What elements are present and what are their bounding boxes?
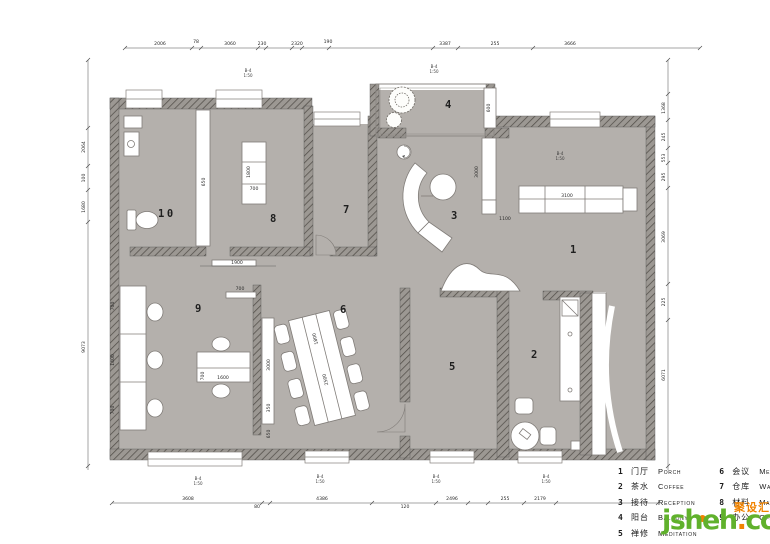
legend-column-left: 1 门厅 Porch 2 茶水 Coffee 3 接待 Reception 4 … bbox=[618, 466, 697, 543]
window bbox=[216, 90, 262, 108]
dim-label: 78 bbox=[193, 39, 199, 45]
dim-label: 1680 bbox=[81, 201, 87, 213]
dim-label: 230 bbox=[258, 41, 267, 47]
dim-label: 650 bbox=[201, 178, 207, 187]
dim-label: 2064 bbox=[81, 141, 87, 153]
legend-item: 2 茶水 Coffee bbox=[618, 481, 697, 496]
dim-label: 1368 bbox=[661, 102, 667, 114]
room-label-3: 3 bbox=[451, 210, 460, 222]
spiral-icon bbox=[397, 145, 411, 159]
window bbox=[314, 112, 360, 126]
detail-marker: B-41:50 bbox=[316, 474, 325, 484]
dim-label: 190 bbox=[324, 39, 333, 45]
window bbox=[550, 112, 600, 127]
svg-text:1:50: 1:50 bbox=[556, 156, 565, 161]
legend-item: 7 仓库 Warehouse bbox=[719, 481, 770, 496]
toilet bbox=[127, 210, 158, 230]
detail-marker: B-41:50 bbox=[194, 476, 203, 486]
svg-text:1:50: 1:50 bbox=[432, 479, 441, 484]
room-label-4: 4 bbox=[445, 99, 454, 111]
dim-label: 225 bbox=[661, 298, 667, 307]
dim-label: 3000 bbox=[266, 359, 272, 371]
svg-text:1:50: 1:50 bbox=[316, 479, 325, 484]
dim-label: 255 bbox=[501, 496, 510, 502]
dim-label: 2006 bbox=[154, 41, 166, 47]
dim-label: 1100 bbox=[499, 216, 511, 222]
room-label-10: 10 bbox=[158, 208, 176, 220]
plant-icon bbox=[387, 113, 402, 128]
dim-label: 255 bbox=[491, 41, 500, 47]
legend-item: 6 会议 Meeting bbox=[719, 466, 770, 481]
dim-label: 2179 bbox=[534, 496, 546, 502]
room-label-2: 2 bbox=[531, 349, 540, 361]
svg-text:1:50: 1:50 bbox=[542, 479, 551, 484]
legend-item: 5 禅修 Meditation bbox=[618, 528, 697, 543]
dim-label: 3666 bbox=[564, 41, 576, 47]
dim-label: 1600 bbox=[217, 375, 229, 381]
dim-label: 6071 bbox=[661, 369, 667, 381]
room-label-6: 6 bbox=[340, 304, 349, 316]
detail-marker: B-41:50 bbox=[542, 474, 551, 484]
dim-label: 3387 bbox=[439, 41, 451, 47]
dim-label: 3000 bbox=[474, 166, 480, 178]
floor-rooms-10-8 bbox=[118, 106, 310, 254]
window bbox=[126, 90, 162, 108]
legend-column-right: 6 会议 Meeting 7 仓库 Warehouse 8 材料 Materia… bbox=[719, 466, 770, 543]
dim-label: 120 bbox=[401, 504, 410, 510]
detail-marker: B-41:50 bbox=[430, 64, 439, 74]
detail-marker: B-41:50 bbox=[432, 474, 441, 484]
tea-counter bbox=[560, 297, 580, 401]
dim-label: 650 bbox=[266, 430, 272, 439]
dim-label: 2496 bbox=[446, 496, 458, 502]
window bbox=[518, 451, 562, 463]
l-counter bbox=[482, 138, 496, 214]
room-label-8: 8 bbox=[270, 213, 279, 225]
detail-marker: B-41:50 bbox=[244, 68, 253, 78]
svg-text:1:50: 1:50 bbox=[244, 73, 253, 78]
dim-label: 1800 bbox=[246, 166, 252, 178]
legend-item: 8 材料 Material bbox=[719, 497, 770, 512]
material-table bbox=[242, 142, 266, 204]
room-label-1: 1 bbox=[570, 244, 579, 256]
corner-box bbox=[571, 441, 580, 450]
dim-label: 3069 bbox=[661, 231, 667, 243]
dim-label: 350 bbox=[266, 404, 272, 413]
dim-label: 1400 bbox=[110, 354, 116, 366]
window bbox=[148, 452, 242, 466]
dim-label: 245 bbox=[661, 133, 667, 142]
legend-item: 9 办公 Office bbox=[719, 512, 770, 527]
svg-text:1:50: 1:50 bbox=[194, 481, 203, 486]
room-label-7: 7 bbox=[343, 204, 352, 216]
dim-label: 2320 bbox=[291, 41, 303, 47]
plant-icon bbox=[395, 93, 409, 107]
dim-label: 100 bbox=[81, 174, 87, 183]
dim-label: 3060 bbox=[224, 41, 236, 47]
window bbox=[430, 451, 474, 463]
dim-label: 700 bbox=[200, 372, 206, 381]
dim-label: 80 bbox=[254, 504, 260, 510]
round-table bbox=[430, 174, 456, 200]
floor-room-7 bbox=[310, 124, 374, 254]
shelf bbox=[226, 292, 256, 298]
workstations bbox=[120, 286, 163, 430]
dim-label: 600 bbox=[486, 104, 492, 113]
dim-label: 9073 bbox=[81, 341, 87, 353]
dim-label: 3608 bbox=[182, 496, 194, 502]
dim-label: 3100 bbox=[561, 193, 573, 199]
window bbox=[305, 451, 349, 463]
legend-item: 1 门厅 Porch bbox=[618, 466, 697, 481]
legend-item: 3 接待 Reception bbox=[618, 497, 697, 512]
dim-label: 700 bbox=[236, 286, 245, 292]
dim-label: 1900 bbox=[231, 260, 243, 266]
legend: 1 门厅 Porch 2 茶水 Coffee 3 接待 Reception 4 … bbox=[618, 466, 770, 543]
reception-desk bbox=[519, 186, 637, 213]
dim-label: 700 bbox=[110, 302, 116, 311]
room-label-9: 9 bbox=[195, 303, 204, 315]
legend-item: 4 阳台 Balcony bbox=[618, 512, 697, 527]
floor-plan-drawing: 2500 1800 bbox=[0, 0, 770, 544]
dim-label: 553 bbox=[661, 154, 667, 163]
dim-label: 700 bbox=[110, 406, 116, 415]
dim-label: 4386 bbox=[316, 496, 328, 502]
dim-label: 700 bbox=[250, 186, 259, 192]
washbasin bbox=[124, 116, 142, 156]
dim-label: 295 bbox=[661, 173, 667, 182]
svg-text:1:50: 1:50 bbox=[430, 69, 439, 74]
room-label-5: 5 bbox=[449, 361, 458, 373]
